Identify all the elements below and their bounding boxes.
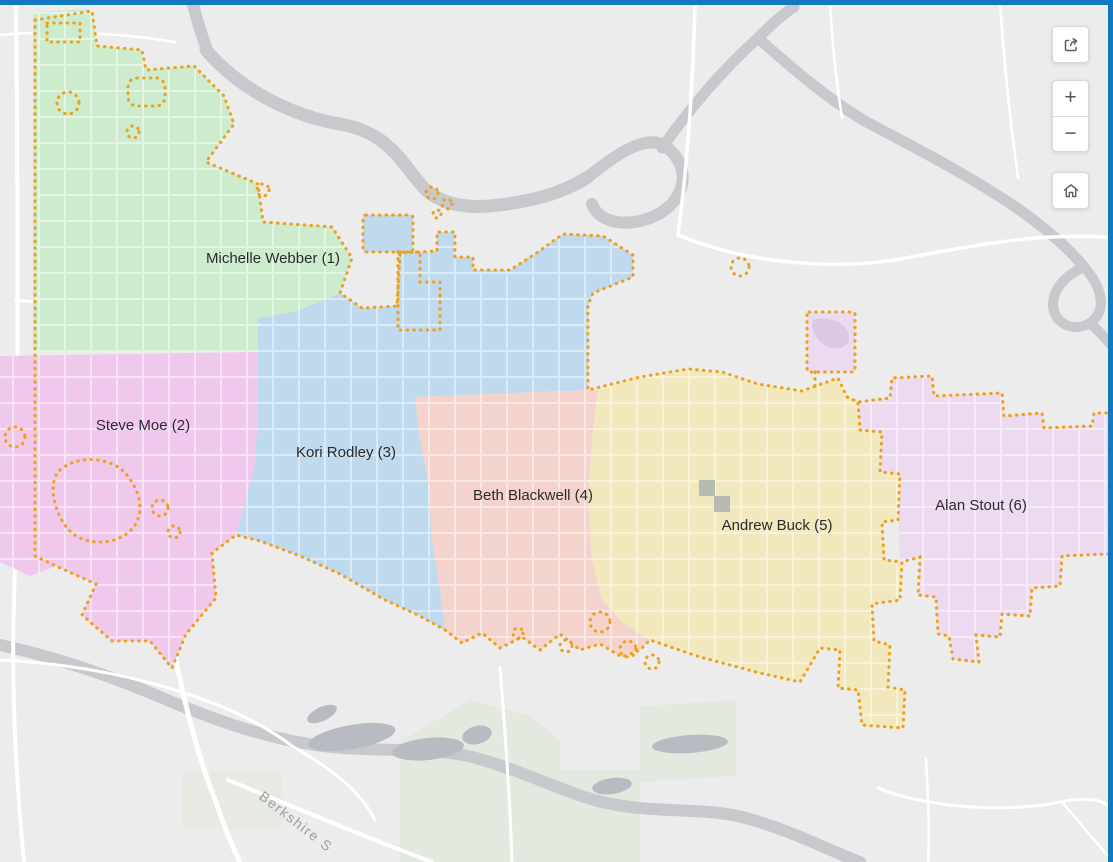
territory-label-3: Kori Rodley (3): [296, 444, 396, 461]
territory-label-2: Steve Moe (2): [96, 417, 190, 434]
home-button[interactable]: [1052, 172, 1089, 209]
zoom-out-button[interactable]: −: [1053, 116, 1088, 152]
frame-highlight-top: [0, 0, 1113, 5]
map-canvas[interactable]: Berkshire S Michelle Webber (1) Steve Mo…: [0, 0, 1113, 862]
export-icon: [1062, 36, 1080, 54]
territory-label-6: Alan Stout (6): [935, 497, 1027, 514]
territory-label-5: Andrew Buck (5): [722, 517, 833, 534]
territory-enclave-blue[interactable]: [363, 215, 413, 252]
frame-highlight-right: [1108, 0, 1113, 862]
map-viewport: Berkshire S Michelle Webber (1) Steve Mo…: [0, 0, 1113, 862]
zoom-in-button[interactable]: +: [1053, 81, 1088, 116]
export-button[interactable]: [1052, 26, 1089, 63]
zoom-control: + −: [1052, 80, 1089, 152]
home-icon: [1062, 182, 1080, 200]
territory-label-4: Beth Blackwell (4): [473, 487, 593, 504]
territory-label-1: Michelle Webber (1): [206, 250, 340, 267]
